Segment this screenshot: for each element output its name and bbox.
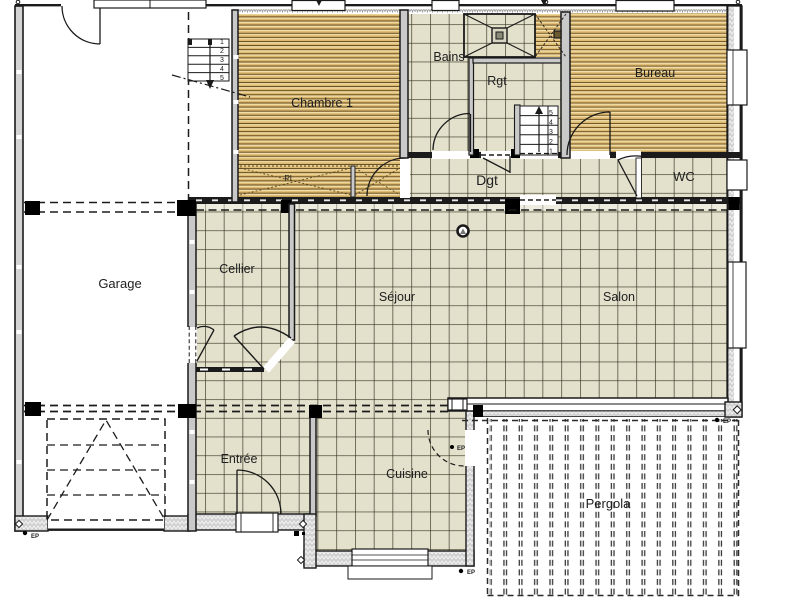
- svg-text:Chambre 1: Chambre 1: [291, 96, 353, 110]
- svg-text:Entrée: Entrée: [221, 452, 258, 466]
- svg-text:2: 2: [549, 139, 553, 146]
- svg-text:4: 4: [549, 120, 553, 127]
- svg-text:2: 2: [220, 48, 224, 55]
- svg-text:1: 1: [549, 148, 553, 155]
- svg-text:Pl: Pl: [284, 173, 292, 183]
- svg-text:EP: EP: [457, 446, 465, 452]
- svg-text:Séjour: Séjour: [379, 290, 415, 304]
- svg-text:EP: EP: [723, 419, 731, 425]
- svg-text:Salon: Salon: [603, 290, 635, 304]
- svg-text:3: 3: [220, 57, 224, 64]
- svg-text:4: 4: [220, 66, 224, 73]
- svg-text:EP: EP: [467, 570, 475, 576]
- svg-text:3: 3: [549, 129, 553, 136]
- svg-text:Pergola: Pergola: [586, 496, 632, 511]
- svg-text:Cuisine: Cuisine: [386, 467, 428, 481]
- svg-text:Cellier: Cellier: [219, 262, 254, 276]
- svg-text:Garage: Garage: [98, 276, 141, 291]
- svg-text:5: 5: [220, 75, 224, 82]
- svg-text:Bains: Bains: [433, 50, 464, 64]
- svg-text:1: 1: [220, 39, 224, 46]
- svg-text:Bureau: Bureau: [635, 66, 675, 80]
- svg-text:5: 5: [549, 110, 553, 117]
- svg-text:Rgt: Rgt: [487, 74, 507, 88]
- svg-text:WC: WC: [673, 169, 695, 184]
- svg-text:Dgt: Dgt: [476, 172, 498, 188]
- svg-text:EP: EP: [31, 534, 39, 540]
